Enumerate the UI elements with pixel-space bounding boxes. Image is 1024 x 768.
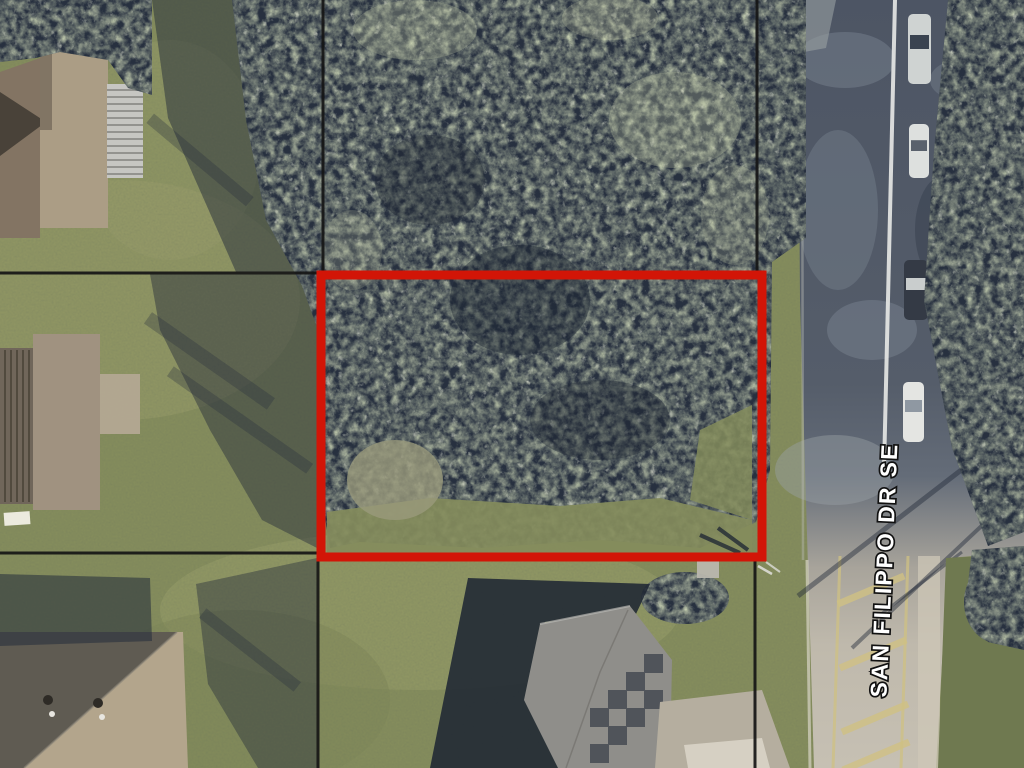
shadow-band [0,574,152,646]
house-bottom-left [0,632,188,768]
utility-shed [697,560,719,578]
vehicle [903,382,924,442]
aerial-parcel-photo: SAN FILIPPO DR SE [0,0,1024,768]
vehicle-glass [911,140,927,151]
sidewalk-strip [918,556,940,768]
canopy-shadow-hole [450,245,590,355]
vehicle-glass [910,35,929,49]
vehicle-glass [906,278,926,290]
vehicle-glass [905,400,922,412]
canopy-sunlit [609,72,741,168]
roof-main [33,334,100,510]
canopy-shadow-hole [375,135,485,225]
roof-vent-cap [49,711,55,717]
road-light-patch [798,130,878,290]
canopy-sunlit [353,0,477,60]
white-trailer [4,511,31,526]
patio-pad [100,374,140,434]
roof-vent [93,698,103,708]
canopy-shadow-hole [530,380,670,460]
vehicle [909,124,929,178]
roof-vent-cap [99,714,105,720]
sandy-patch [347,440,443,520]
canopy-sunlit [701,165,769,265]
vehicle [908,14,931,84]
vehicle [904,260,928,320]
roof-notch [40,52,52,130]
aerial-photo-canvas: SAN FILIPPO DR SE [0,0,1024,768]
road-light-patch [827,300,917,360]
roof-vent [43,695,53,705]
